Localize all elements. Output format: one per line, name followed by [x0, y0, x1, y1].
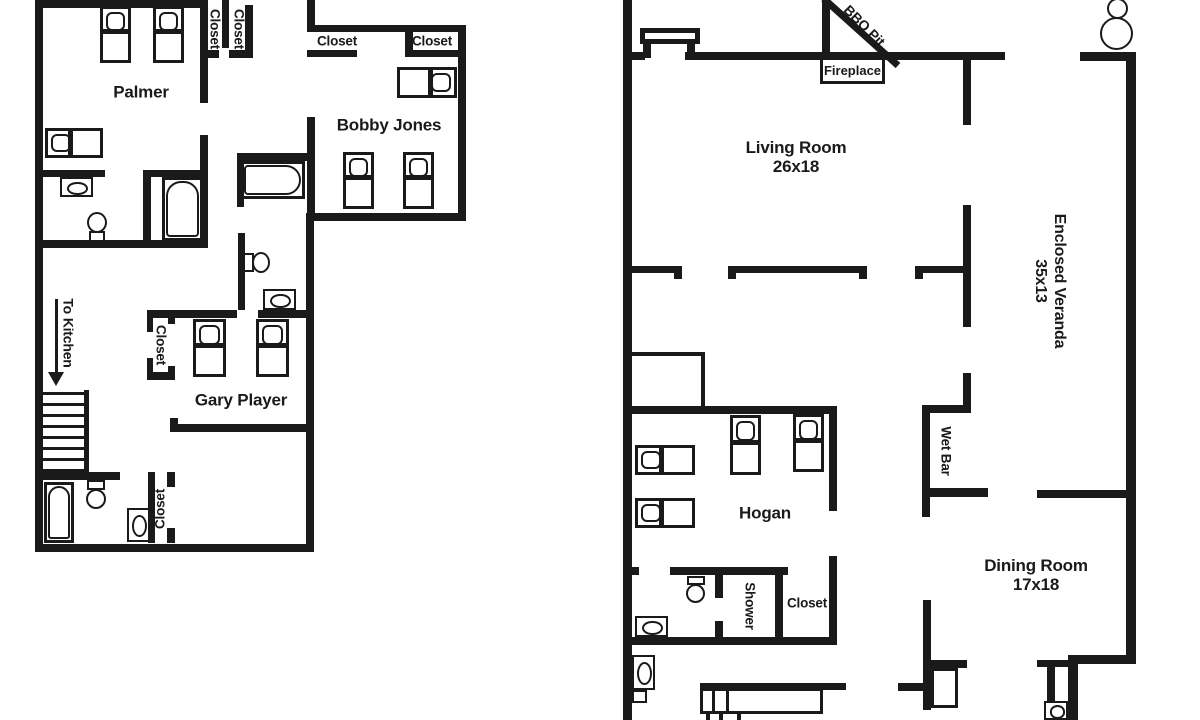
bed-band — [659, 501, 664, 525]
wall — [307, 117, 315, 221]
bed-pillow — [409, 158, 428, 177]
wall — [706, 713, 710, 720]
bed-band — [428, 70, 433, 95]
bathtub-basin — [48, 486, 70, 539]
wall — [405, 50, 460, 57]
bench-icon — [640, 28, 700, 44]
wall — [1068, 664, 1078, 720]
bed-band — [796, 438, 821, 443]
room-name: Enclosed Veranda — [1050, 214, 1069, 349]
stair-tread — [40, 392, 84, 395]
bed-icon — [730, 415, 761, 475]
bed-pillow — [349, 158, 368, 177]
wall — [632, 637, 837, 645]
counter — [700, 688, 823, 714]
bed-icon — [45, 128, 103, 158]
bed-icon — [635, 498, 695, 528]
wall — [915, 266, 923, 279]
toilet-icon — [252, 252, 270, 273]
room-label-gary-player: Gary Player — [195, 392, 287, 411]
wall — [35, 544, 314, 552]
room-name: Living Room — [746, 138, 847, 157]
bed-band — [733, 440, 758, 445]
bathtub-basin — [166, 181, 199, 237]
bed-band — [196, 343, 223, 348]
sink-basin — [1050, 705, 1066, 718]
wall — [923, 600, 931, 710]
sink-icon — [635, 616, 668, 637]
room-size: 35x13 — [1031, 214, 1050, 349]
wall — [1126, 52, 1136, 663]
bed-icon — [343, 152, 374, 209]
wall — [898, 683, 923, 691]
room-size: 17x18 — [984, 575, 1088, 594]
closet-label: Closet — [153, 325, 168, 365]
room-label-palmer: Palmer — [113, 84, 169, 103]
wall — [922, 405, 930, 492]
room-name: Dining Room — [984, 556, 1088, 575]
wall — [307, 50, 357, 57]
wall — [963, 60, 971, 125]
wall — [643, 44, 651, 58]
wall — [306, 213, 314, 552]
bed-band — [406, 175, 431, 180]
wall — [829, 556, 837, 645]
wall — [167, 528, 175, 543]
toilet-icon — [686, 584, 705, 603]
wall — [775, 573, 783, 645]
sink-basin — [67, 182, 88, 196]
bed-band — [346, 175, 371, 180]
sink-basin — [270, 294, 291, 309]
room-label-dining-room: Dining Room 17x18 — [984, 556, 1088, 594]
closet-label: Closet — [154, 489, 169, 529]
bed-band — [259, 343, 286, 348]
wall — [237, 153, 310, 161]
wall — [687, 44, 695, 58]
wall — [167, 472, 175, 487]
bed-band — [103, 29, 128, 34]
wall — [719, 713, 723, 720]
bed-band — [68, 131, 73, 155]
wall — [728, 266, 867, 273]
stair-tread — [40, 447, 84, 450]
wall — [307, 0, 315, 25]
wall — [84, 390, 89, 472]
bed-pillow — [106, 12, 125, 31]
wall — [168, 318, 175, 324]
floor-plan-canvas: Palmer Closet Closet Bobby Jones Closet … — [0, 0, 1200, 720]
door — [931, 668, 958, 708]
stair-tread — [40, 469, 84, 472]
bed-pillow — [199, 325, 220, 345]
bed-pillow — [431, 73, 451, 92]
closet-label: Closet — [317, 35, 357, 50]
wall — [35, 472, 120, 480]
room-label-living-room: Living Room 26x18 — [746, 138, 847, 176]
wall — [922, 497, 930, 517]
wall — [922, 405, 971, 413]
wall — [40, 170, 105, 177]
wall — [623, 406, 837, 414]
shower-label: Shower — [742, 582, 757, 630]
wall — [632, 567, 639, 575]
sink-basin — [642, 621, 663, 636]
wall — [1037, 660, 1070, 667]
wall — [170, 424, 308, 432]
toilet-icon — [86, 489, 106, 509]
wall — [307, 213, 466, 221]
wall — [829, 414, 837, 511]
bed-pillow — [799, 420, 818, 440]
bed-icon — [153, 6, 184, 63]
wall — [632, 352, 705, 356]
wet-bar-label: Wet Bar — [938, 426, 953, 475]
fixture — [632, 690, 647, 703]
sink-icon — [127, 508, 150, 542]
bbq-pit-label: BBQ Pit — [840, 2, 887, 49]
wall — [307, 25, 460, 32]
wall — [737, 713, 741, 720]
wall — [670, 567, 788, 575]
wall — [701, 352, 705, 410]
sink-icon — [632, 655, 655, 690]
room-label-hogan: Hogan — [739, 505, 791, 524]
wall — [915, 266, 971, 273]
sink-icon — [60, 177, 93, 197]
stair-tread — [40, 436, 84, 439]
bathtub-basin — [244, 165, 301, 195]
closet-label: Closet — [412, 35, 452, 50]
wall — [147, 372, 175, 380]
bed-icon — [193, 319, 226, 377]
wall — [623, 0, 632, 720]
wall — [143, 170, 208, 177]
wall — [1037, 490, 1126, 498]
wall — [1047, 667, 1055, 703]
wall — [674, 266, 682, 279]
bed-icon — [397, 67, 457, 98]
bed-pillow — [159, 12, 178, 31]
wall — [229, 50, 253, 58]
stair-tread — [40, 414, 84, 417]
wall — [1068, 655, 1136, 664]
wall — [859, 266, 867, 279]
stair-tread — [40, 425, 84, 428]
room-label-enclosed-veranda: Enclosed Veranda 35x13 — [1031, 214, 1069, 349]
wall — [168, 366, 175, 372]
bed-band — [659, 448, 664, 472]
fireplace-label-box: Fireplace — [820, 57, 885, 84]
wall — [728, 266, 736, 279]
sink-basin — [637, 662, 652, 685]
stair-tread — [40, 403, 84, 406]
wall — [222, 0, 229, 48]
room-label-bobby-jones: Bobby Jones — [337, 117, 442, 136]
to-kitchen-label: To Kitchen — [60, 298, 75, 367]
bed-pillow — [736, 421, 755, 441]
closet-label: Closet — [207, 9, 222, 49]
sink-icon — [263, 289, 296, 310]
bed-icon — [635, 445, 695, 475]
bed-icon — [403, 152, 434, 209]
arrow-down-icon — [48, 372, 64, 386]
wall — [55, 299, 58, 373]
bed-icon — [793, 414, 824, 472]
column-circle-icon — [1100, 17, 1133, 50]
closet-label: Closet — [231, 9, 246, 49]
bed-icon — [100, 6, 131, 63]
bed-band — [156, 29, 181, 34]
wall — [200, 50, 219, 58]
closet-label: Closet — [787, 597, 827, 612]
fireplace-label: Fireplace — [824, 63, 881, 78]
wall — [147, 310, 237, 318]
wall — [922, 488, 988, 497]
room-size: 26x18 — [746, 157, 847, 176]
wall — [35, 240, 208, 248]
bed-icon — [256, 319, 289, 377]
wall — [258, 310, 308, 318]
bed-pillow — [262, 325, 283, 345]
wall — [927, 660, 967, 668]
sink-icon — [1044, 701, 1068, 720]
wall — [715, 575, 723, 598]
wall — [143, 170, 151, 243]
stair-tread — [40, 458, 84, 461]
sink-basin — [132, 515, 147, 538]
toilet-icon — [87, 212, 107, 233]
